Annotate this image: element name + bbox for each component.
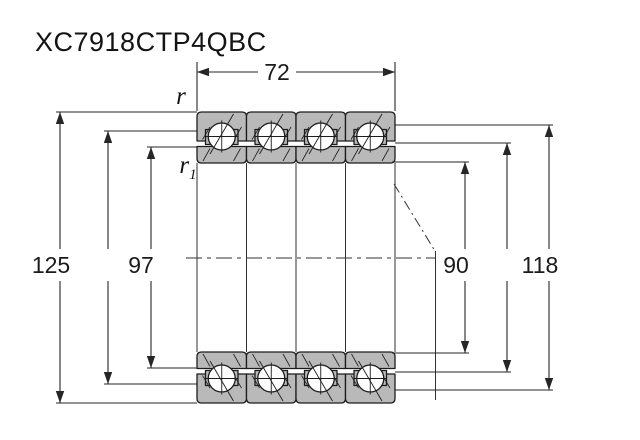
dim-label-width: 72 <box>264 59 290 85</box>
bearing-unit <box>296 112 346 163</box>
dim-label-left-shoulder: 97 <box>128 252 154 278</box>
contact-angle-line <box>394 184 435 251</box>
bearing-unit <box>247 352 297 403</box>
bearing-unit <box>346 112 396 163</box>
dim-label-bore: 90 <box>443 252 469 278</box>
bearing-unit <box>247 112 297 163</box>
bearing-unit <box>296 352 346 403</box>
bearing-drawing: 72 125 97 90 <box>0 0 640 440</box>
bearing-unit <box>197 112 247 163</box>
dimension-width: 72 <box>197 59 395 111</box>
bearing-unit <box>197 352 247 403</box>
chamfer-label-r: r <box>176 83 186 110</box>
page-title: XC7918CTP4QBC <box>35 27 267 57</box>
dimension-outer-diameter: 125 <box>32 112 197 403</box>
dim-label-outer-diameter: 125 <box>32 252 70 278</box>
dim-label-right-shoulder: 118 <box>522 252 559 278</box>
bearing-unit <box>346 352 396 403</box>
drawing-canvas: 72 125 97 90 <box>0 0 640 440</box>
chamfer-r1-subscript: 1 <box>189 167 197 183</box>
chamfer-label-r1: r1 <box>179 152 196 183</box>
chamfer-r1-base: r <box>179 152 189 179</box>
